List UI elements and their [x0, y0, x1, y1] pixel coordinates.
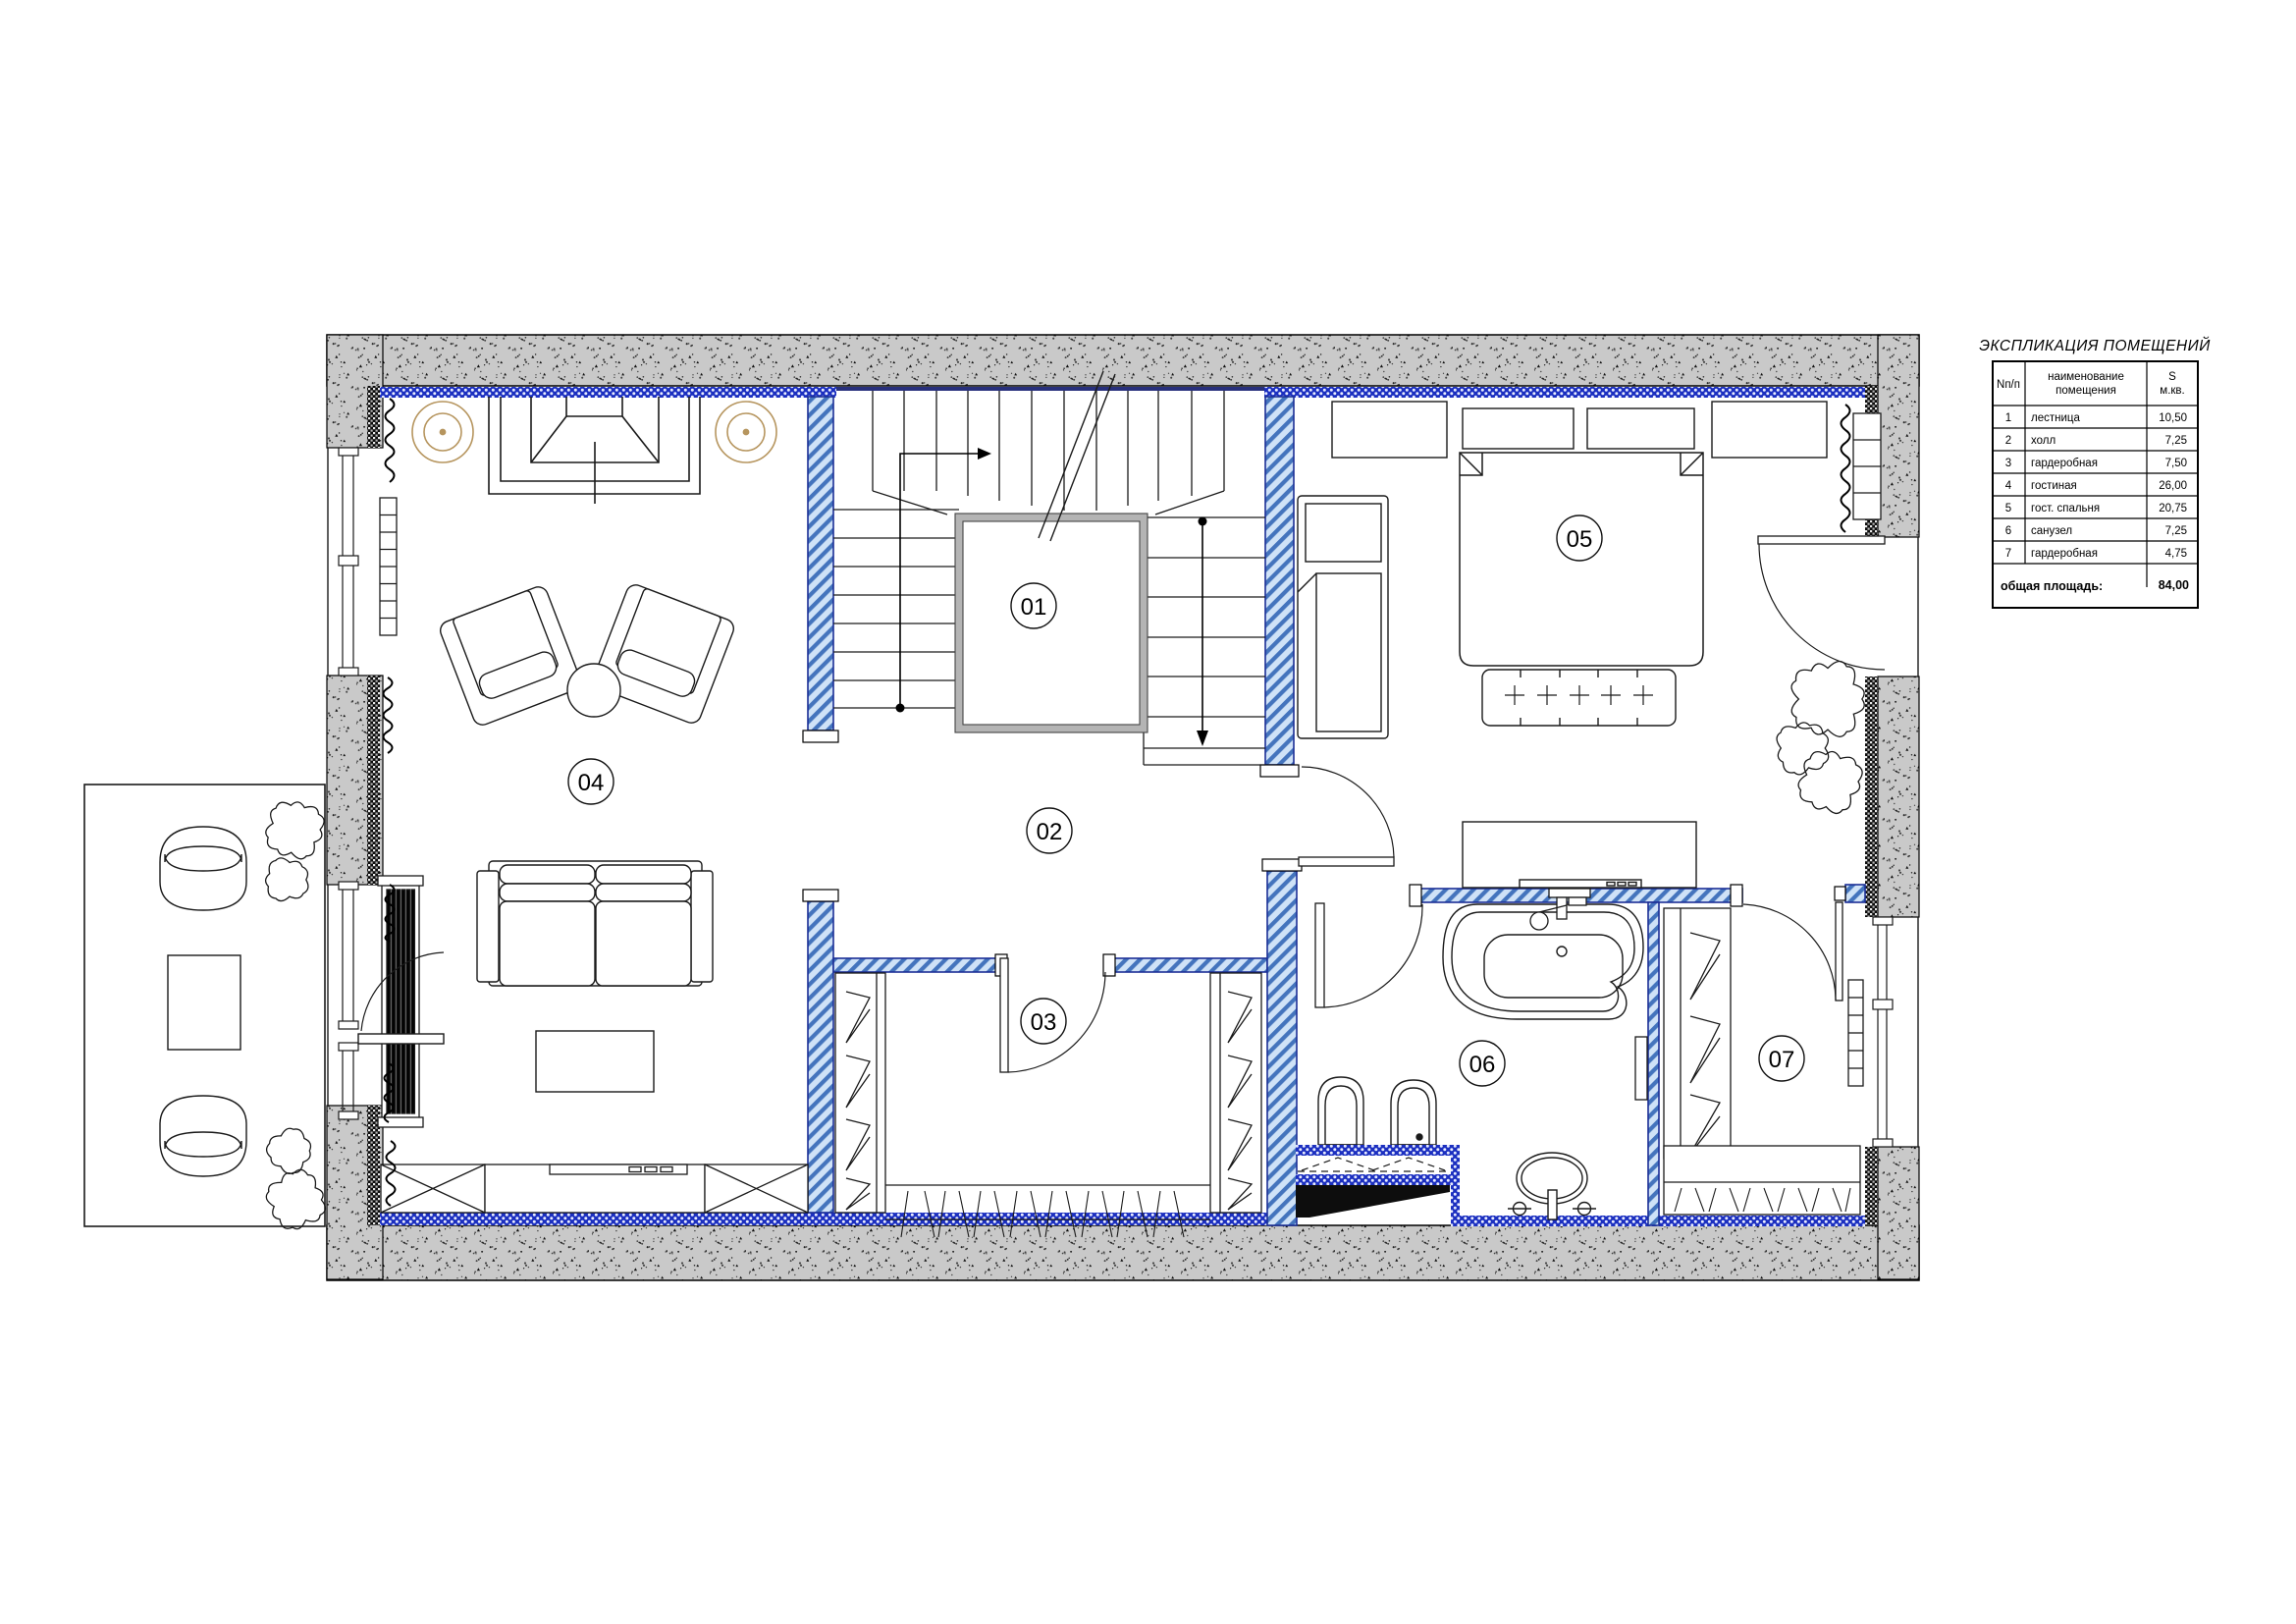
svg-text:04: 04 [578, 770, 605, 796]
svg-text:03: 03 [1031, 1009, 1057, 1036]
svg-text:02: 02 [1037, 819, 1063, 845]
svg-text:05: 05 [1567, 526, 1593, 553]
svg-text:2: 2 [2005, 435, 2011, 447]
svg-text:гостиная: гостиная [2031, 480, 2077, 492]
svg-text:07: 07 [1769, 1047, 1795, 1073]
svg-text:холл: холл [2031, 435, 2056, 447]
svg-text:01: 01 [1021, 594, 1047, 621]
svg-text:7,50: 7,50 [2165, 458, 2187, 469]
svg-text:06: 06 [1469, 1052, 1496, 1078]
svg-text:7: 7 [2005, 548, 2011, 560]
svg-text:6: 6 [2005, 525, 2011, 537]
svg-text:10,50: 10,50 [2159, 412, 2187, 424]
svg-text:3: 3 [2005, 458, 2011, 469]
svg-text:84,00: 84,00 [2159, 578, 2189, 592]
svg-text:лестница: лестница [2031, 412, 2080, 424]
svg-text:общая площадь:: общая площадь: [2001, 579, 2103, 593]
svg-text:наименование: наименование [2048, 371, 2124, 383]
svg-text:7,25: 7,25 [2165, 525, 2187, 537]
svg-text:7,25: 7,25 [2165, 435, 2187, 447]
svg-text:4: 4 [2005, 480, 2012, 492]
svg-text:5: 5 [2005, 503, 2011, 514]
svg-text:санузел: санузел [2031, 525, 2072, 537]
svg-text:ЭКСПЛИКАЦИЯ ПОМЕЩЕНИЙ: ЭКСПЛИКАЦИЯ ПОМЕЩЕНИЙ [1979, 337, 2211, 354]
svg-text:гардеробная: гардеробная [2031, 458, 2098, 469]
svg-text:4,75: 4,75 [2165, 548, 2187, 560]
svg-text:1: 1 [2005, 412, 2011, 424]
svg-text:Nп/п: Nп/п [1997, 379, 2020, 391]
svg-text:помещения: помещения [2056, 385, 2116, 397]
svg-text:гардеробная: гардеробная [2031, 548, 2098, 560]
svg-text:S: S [2168, 371, 2176, 383]
svg-text:гост. спальня: гост. спальня [2031, 503, 2100, 514]
svg-text:26,00: 26,00 [2159, 480, 2187, 492]
svg-text:м.кв.: м.кв. [2160, 385, 2184, 397]
svg-text:20,75: 20,75 [2159, 503, 2187, 514]
